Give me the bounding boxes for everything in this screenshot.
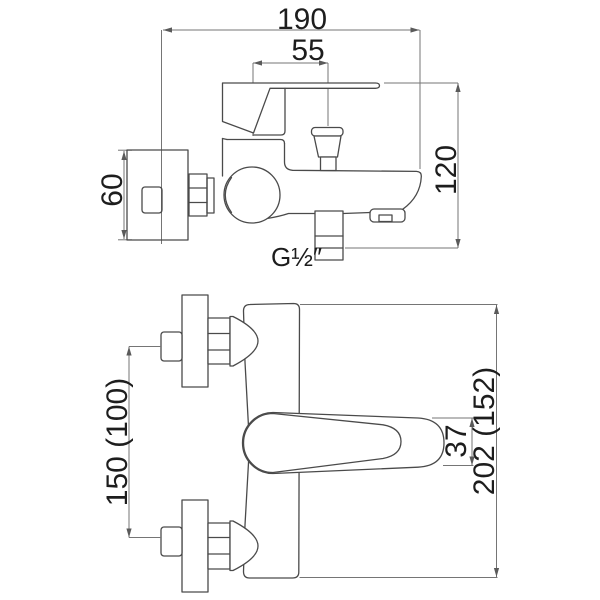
handle-lever-side — [223, 83, 380, 133]
hex-nut — [208, 523, 230, 569]
spout-side — [267, 144, 421, 219]
arrow-up-icon — [494, 305, 499, 314]
arrow-left-icon — [253, 60, 262, 65]
ball-joint — [224, 167, 280, 223]
arrow-up-icon — [121, 151, 126, 160]
wall-flange — [182, 295, 208, 387]
arrow-right-icon — [411, 27, 420, 32]
mounting-nut — [189, 174, 214, 216]
arrow-down-icon — [126, 529, 131, 538]
hex-nut — [189, 174, 207, 216]
wall-plate — [127, 150, 188, 240]
inlet-square — [161, 332, 182, 361]
bottom-mount — [161, 500, 258, 592]
arrow-up-icon — [126, 347, 131, 356]
cone-cover — [230, 521, 258, 571]
water-inlet-square — [142, 187, 162, 213]
inlet-square — [161, 527, 182, 556]
arrow-left-icon — [163, 27, 172, 32]
aerator — [370, 209, 405, 222]
dim-120: 120 — [345, 83, 463, 248]
side-view: 190 55 120 60 — [96, 3, 463, 272]
diverter-knob — [312, 128, 344, 171]
arrow-down-icon — [455, 239, 460, 248]
lever-handle-plan — [242, 413, 444, 474]
cone-cover — [230, 317, 258, 367]
dim-150-label: 150 (100) — [101, 378, 134, 506]
dim-60-label: 60 — [96, 173, 129, 206]
wall-flange — [182, 500, 208, 592]
arrow-down-icon — [121, 230, 126, 239]
technical-drawing-canvas: 190 55 120 60 — [0, 0, 600, 600]
dim-55-label: 55 — [291, 34, 324, 67]
arrow-down-icon — [494, 568, 499, 577]
plan-view: 150 (100) 202 (152) 37 — [101, 295, 501, 592]
arrow-up-icon — [455, 83, 460, 92]
ball-joint-circle — [224, 167, 280, 223]
dim-150: 150 (100) — [101, 347, 161, 538]
technical-drawing-page: 190 55 120 60 — [0, 0, 600, 600]
washer — [207, 178, 214, 213]
thread-size-label: G½″ — [271, 242, 322, 272]
dim-120-label: 120 — [430, 145, 463, 195]
dim-37-label: 37 — [440, 424, 473, 457]
hex-nut — [208, 318, 230, 364]
dim-190-label: 190 — [277, 3, 327, 36]
